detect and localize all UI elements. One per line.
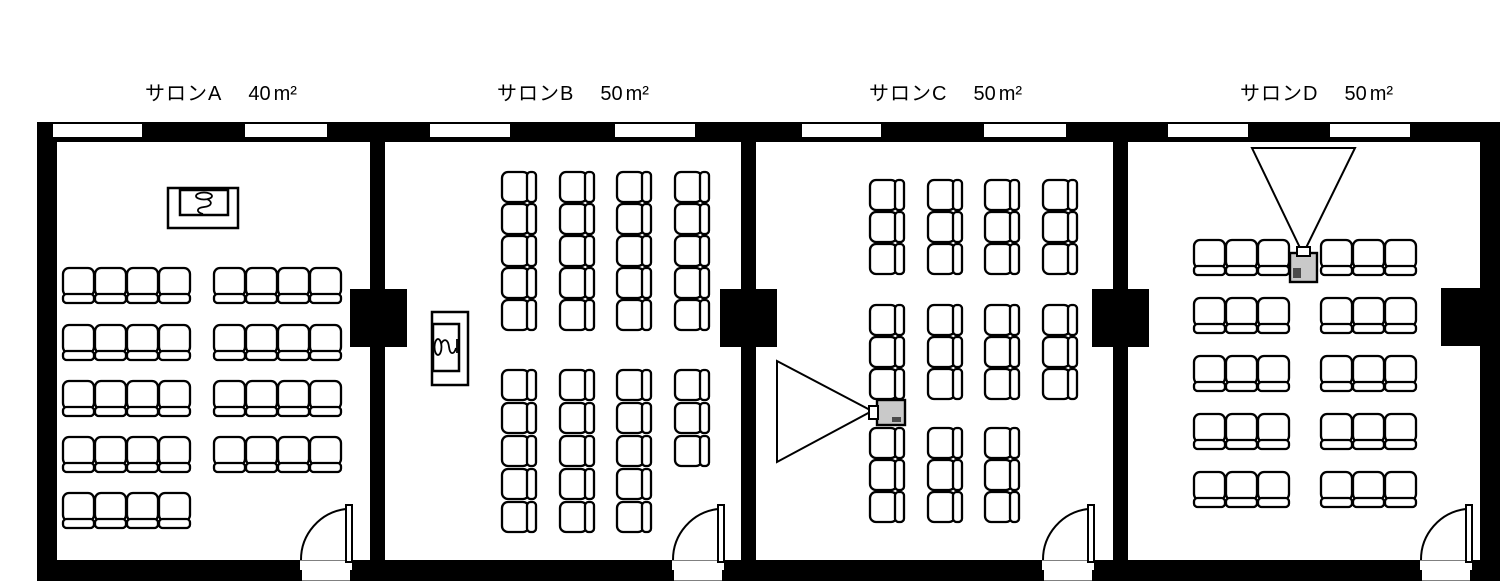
chair	[1043, 337, 1077, 367]
chair-back	[95, 519, 126, 528]
chair	[675, 370, 709, 400]
chair-seat	[502, 268, 529, 298]
chair-back	[1321, 440, 1352, 449]
chair-back	[1226, 324, 1257, 333]
chair-back	[1068, 369, 1077, 399]
chair-seat	[310, 325, 341, 353]
chair-back	[895, 492, 904, 522]
podium-vertical	[432, 312, 468, 385]
chair-back	[1010, 369, 1019, 399]
chair	[127, 381, 158, 416]
chair-back	[1068, 180, 1077, 210]
chair	[560, 268, 594, 298]
chair-seat	[617, 236, 644, 266]
chair	[1258, 240, 1289, 275]
chair-seat	[63, 381, 94, 409]
chair-seat	[1226, 298, 1257, 326]
chair-seat	[214, 381, 245, 409]
chair	[278, 437, 309, 472]
chair-seat	[502, 436, 529, 466]
chair-seat	[1194, 472, 1225, 500]
chair-seat	[617, 436, 644, 466]
chair-seat	[870, 369, 897, 399]
chair-back	[1385, 324, 1416, 333]
chair	[617, 204, 651, 234]
chair-back	[585, 300, 594, 330]
chair	[159, 437, 190, 472]
chair-back	[642, 502, 651, 532]
chair-seat	[1385, 472, 1416, 500]
chair	[1321, 240, 1352, 275]
chair	[159, 381, 190, 416]
chair	[1043, 369, 1077, 399]
chair-seat	[1385, 356, 1416, 384]
chair-back	[895, 244, 904, 274]
chair-back	[1353, 266, 1384, 275]
chair	[310, 325, 341, 360]
chair-seat	[502, 204, 529, 234]
chair-seat	[928, 212, 955, 242]
chair-back	[1068, 337, 1077, 367]
chair-back	[278, 294, 309, 303]
door-opening	[300, 561, 352, 581]
chair-back	[1068, 305, 1077, 335]
chair-seat	[502, 403, 529, 433]
chair	[617, 469, 651, 499]
wall-between-a-b	[370, 140, 385, 562]
chair-back	[700, 204, 709, 234]
chair-back	[1226, 382, 1257, 391]
chair-back	[895, 428, 904, 458]
pillar	[1441, 288, 1480, 346]
chair	[502, 370, 536, 400]
chair	[1226, 298, 1257, 333]
chair-seat	[928, 369, 955, 399]
chair	[1226, 472, 1257, 507]
chair-back	[1353, 440, 1384, 449]
chair-seat	[675, 436, 702, 466]
chair	[1194, 414, 1225, 449]
pillar	[350, 289, 407, 347]
door-leaf	[1466, 505, 1472, 562]
chair	[617, 502, 651, 532]
chair-seat	[1353, 414, 1384, 442]
chair-seat	[214, 437, 245, 465]
chair	[1353, 414, 1384, 449]
chair-seat	[1353, 298, 1384, 326]
chair-seat	[617, 172, 644, 202]
chair-back	[127, 519, 158, 528]
chair-seat	[675, 300, 702, 330]
chair-back	[127, 407, 158, 416]
chair-seat	[1353, 356, 1384, 384]
chair	[928, 337, 962, 367]
chair	[1353, 298, 1384, 333]
chair-seat	[127, 381, 158, 409]
door-opening	[1042, 561, 1094, 581]
chair	[63, 493, 94, 528]
chair-back	[527, 236, 536, 266]
chair-back	[1010, 428, 1019, 458]
room-name: サロンA	[145, 83, 222, 105]
chair	[214, 268, 245, 303]
chair-back	[1258, 324, 1289, 333]
chair-seat	[502, 236, 529, 266]
chair	[870, 369, 904, 399]
chair	[928, 428, 962, 458]
chair-back	[700, 236, 709, 266]
chair-back	[700, 268, 709, 298]
chair	[214, 437, 245, 472]
chair-seat	[1258, 298, 1289, 326]
chair	[278, 381, 309, 416]
chair-back	[1353, 498, 1384, 507]
chair-seat	[1321, 356, 1352, 384]
chair	[502, 502, 536, 532]
wall-between-c-d	[1113, 140, 1128, 562]
chair-seat	[928, 180, 955, 210]
chair-back	[1194, 440, 1225, 449]
chair-seat	[1321, 298, 1352, 326]
chair	[63, 381, 94, 416]
chair-back	[1194, 382, 1225, 391]
chair-back	[953, 492, 962, 522]
chair-back	[585, 268, 594, 298]
chair-back	[1068, 212, 1077, 242]
chair-back	[310, 463, 341, 472]
chair-seat	[246, 268, 277, 296]
chair	[1258, 472, 1289, 507]
chair-seat	[560, 436, 587, 466]
chair	[617, 436, 651, 466]
chair-back	[527, 469, 536, 499]
chair	[1194, 240, 1225, 275]
chair-seat	[1043, 212, 1070, 242]
chair	[870, 460, 904, 490]
chair-block	[502, 370, 651, 532]
chair-seat	[1194, 240, 1225, 268]
room-label-salon-a: サロンA40m²	[145, 84, 297, 104]
chair-seat	[870, 428, 897, 458]
chair-seat	[159, 493, 190, 521]
chair	[1043, 180, 1077, 210]
chair-back	[642, 403, 651, 433]
chair-seat	[246, 437, 277, 465]
chair-back	[1353, 382, 1384, 391]
chair-seat	[278, 437, 309, 465]
window	[53, 124, 142, 137]
chair-back	[246, 407, 277, 416]
chair	[95, 268, 126, 303]
chair-back	[585, 403, 594, 433]
door-leaf	[1088, 505, 1094, 562]
chair-seat	[159, 325, 190, 353]
chair-seat	[870, 180, 897, 210]
chair-seat	[63, 493, 94, 521]
chair-seat	[560, 502, 587, 532]
chair-back	[214, 294, 245, 303]
chair	[675, 204, 709, 234]
chair-seat	[560, 469, 587, 499]
chair	[502, 268, 536, 298]
chair-seat	[1043, 337, 1070, 367]
chair-back	[310, 407, 341, 416]
chair-seat	[675, 236, 702, 266]
chair-back	[1385, 382, 1416, 391]
chair	[985, 369, 1019, 399]
chair	[1353, 356, 1384, 391]
chair	[675, 436, 709, 466]
chair	[502, 300, 536, 330]
chair-back	[1385, 440, 1416, 449]
chair	[985, 212, 1019, 242]
chair	[870, 212, 904, 242]
chair	[1353, 472, 1384, 507]
chair-back	[953, 337, 962, 367]
door-leaf	[718, 505, 724, 562]
chair-seat	[560, 370, 587, 400]
chair-seat	[675, 172, 702, 202]
chair	[1043, 212, 1077, 242]
chair	[617, 403, 651, 433]
chair-back	[700, 403, 709, 433]
chair	[928, 212, 962, 242]
chair-seat	[675, 204, 702, 234]
chair	[617, 172, 651, 202]
chair-seat	[617, 204, 644, 234]
room-label-salon-c: サロンC50m²	[869, 84, 1022, 104]
chair-back	[1321, 266, 1352, 275]
chair	[214, 325, 245, 360]
chair-seat	[1353, 240, 1384, 268]
chair-seat	[560, 172, 587, 202]
chair	[310, 381, 341, 416]
chair	[675, 268, 709, 298]
chair-seat	[1385, 240, 1416, 268]
chair-back	[63, 294, 94, 303]
door-jamb	[1470, 570, 1474, 581]
chair-back	[527, 502, 536, 532]
room-area-value: 50	[600, 83, 622, 105]
chair-back	[214, 463, 245, 472]
chair	[95, 437, 126, 472]
door-jamb	[1092, 570, 1096, 581]
chair-back	[953, 244, 962, 274]
chair	[278, 268, 309, 303]
chair	[560, 469, 594, 499]
projector-detail	[1293, 268, 1301, 278]
chair-back	[95, 463, 126, 472]
chair-seat	[617, 469, 644, 499]
chair-back	[585, 469, 594, 499]
chair	[560, 300, 594, 330]
chair-seat	[1194, 356, 1225, 384]
chair	[1258, 356, 1289, 391]
chair-seat	[870, 460, 897, 490]
chair-seat	[985, 369, 1012, 399]
chair-block	[675, 370, 709, 466]
chair	[985, 492, 1019, 522]
chair-back	[278, 407, 309, 416]
chair-seat	[1226, 240, 1257, 268]
chair	[1258, 414, 1289, 449]
wall-left	[37, 122, 57, 581]
projector-icon	[1290, 247, 1317, 282]
chair-back	[1226, 266, 1257, 275]
window	[1168, 124, 1248, 137]
chair-seat	[502, 370, 529, 400]
chair	[928, 244, 962, 274]
chair-seat	[246, 381, 277, 409]
chair-seat	[159, 268, 190, 296]
chair-back	[642, 204, 651, 234]
chair-back	[95, 294, 126, 303]
chair-back	[1010, 492, 1019, 522]
chair-seat	[127, 437, 158, 465]
chair-back	[127, 463, 158, 472]
chair-seat	[928, 337, 955, 367]
chair	[985, 428, 1019, 458]
chair-back	[527, 370, 536, 400]
chair-back	[527, 172, 536, 202]
chair-seat	[617, 268, 644, 298]
chair	[928, 369, 962, 399]
room-area-value: 40	[248, 83, 270, 105]
window	[1330, 124, 1410, 137]
chair-seat	[1258, 356, 1289, 384]
chair-back	[1258, 440, 1289, 449]
chair-back	[1321, 382, 1352, 391]
room-area-unit: m²	[999, 83, 1022, 105]
chair	[675, 403, 709, 433]
chair	[1321, 414, 1352, 449]
chair-back	[1010, 460, 1019, 490]
chair-back	[642, 436, 651, 466]
chair-seat	[502, 502, 529, 532]
chair-seat	[159, 381, 190, 409]
chair	[560, 236, 594, 266]
chair-seat	[870, 492, 897, 522]
chair-seat	[928, 428, 955, 458]
chair-seat	[1226, 414, 1257, 442]
chair-back	[1068, 244, 1077, 274]
chair	[1226, 240, 1257, 275]
chair-seat	[560, 403, 587, 433]
chair-back	[642, 172, 651, 202]
chair-seat	[127, 325, 158, 353]
chair-back	[1321, 498, 1352, 507]
chair-back	[63, 351, 94, 360]
chair-seat	[127, 268, 158, 296]
chair	[1385, 414, 1416, 449]
door-jamb	[298, 570, 302, 581]
chair-seat	[985, 305, 1012, 335]
chair-seat	[278, 268, 309, 296]
chair-back	[642, 370, 651, 400]
chair-seat	[675, 403, 702, 433]
chair-back	[63, 407, 94, 416]
chair-back	[953, 460, 962, 490]
chair-seat	[95, 381, 126, 409]
chair	[278, 325, 309, 360]
chair-seat	[1043, 369, 1070, 399]
chair-back	[1010, 244, 1019, 274]
chair-back	[585, 370, 594, 400]
chair-back	[1010, 180, 1019, 210]
chair-seat	[1194, 414, 1225, 442]
chair-back	[895, 305, 904, 335]
chair-back	[895, 212, 904, 242]
chair	[502, 172, 536, 202]
podium-inner	[180, 190, 228, 215]
chair	[675, 172, 709, 202]
chair	[502, 469, 536, 499]
chair-seat	[928, 305, 955, 335]
chair-seat	[95, 268, 126, 296]
chair-seat	[1321, 472, 1352, 500]
chair	[1194, 298, 1225, 333]
chair	[159, 325, 190, 360]
chair-back	[63, 519, 94, 528]
chair	[1226, 414, 1257, 449]
chair-back	[1010, 337, 1019, 367]
chair-back	[278, 463, 309, 472]
chair	[246, 268, 277, 303]
chair-seat	[63, 268, 94, 296]
door-opening	[1420, 561, 1472, 581]
chair	[928, 305, 962, 335]
chair-seat	[617, 300, 644, 330]
chair-back	[1258, 266, 1289, 275]
chair	[63, 437, 94, 472]
door-jamb	[1418, 570, 1422, 581]
chair	[159, 493, 190, 528]
chair-seat	[985, 337, 1012, 367]
chair-back	[895, 337, 904, 367]
room-area-value: 50	[973, 83, 995, 105]
chair-back	[1321, 324, 1352, 333]
chair-seat	[278, 325, 309, 353]
chair-back	[310, 351, 341, 360]
chair	[560, 370, 594, 400]
chair-back	[159, 463, 190, 472]
chair	[127, 493, 158, 528]
chair	[560, 204, 594, 234]
chair	[1321, 472, 1352, 507]
chair-seat	[1258, 472, 1289, 500]
projector-detail	[892, 417, 901, 422]
chair	[1258, 298, 1289, 333]
chair-seat	[560, 300, 587, 330]
chair	[985, 180, 1019, 210]
chair-back	[95, 407, 126, 416]
chair-seat	[246, 325, 277, 353]
window	[802, 124, 881, 137]
chair-back	[953, 305, 962, 335]
chair-back	[700, 172, 709, 202]
chair-seat	[63, 437, 94, 465]
room-name: サロンB	[497, 83, 574, 105]
chair-seat	[675, 268, 702, 298]
chair-seat	[1353, 472, 1384, 500]
projector-lens	[869, 406, 878, 419]
chair-seat	[95, 493, 126, 521]
chair	[1385, 298, 1416, 333]
door-jamb	[722, 570, 726, 581]
window	[245, 124, 327, 137]
chair-seat	[1321, 240, 1352, 268]
chair	[310, 437, 341, 472]
